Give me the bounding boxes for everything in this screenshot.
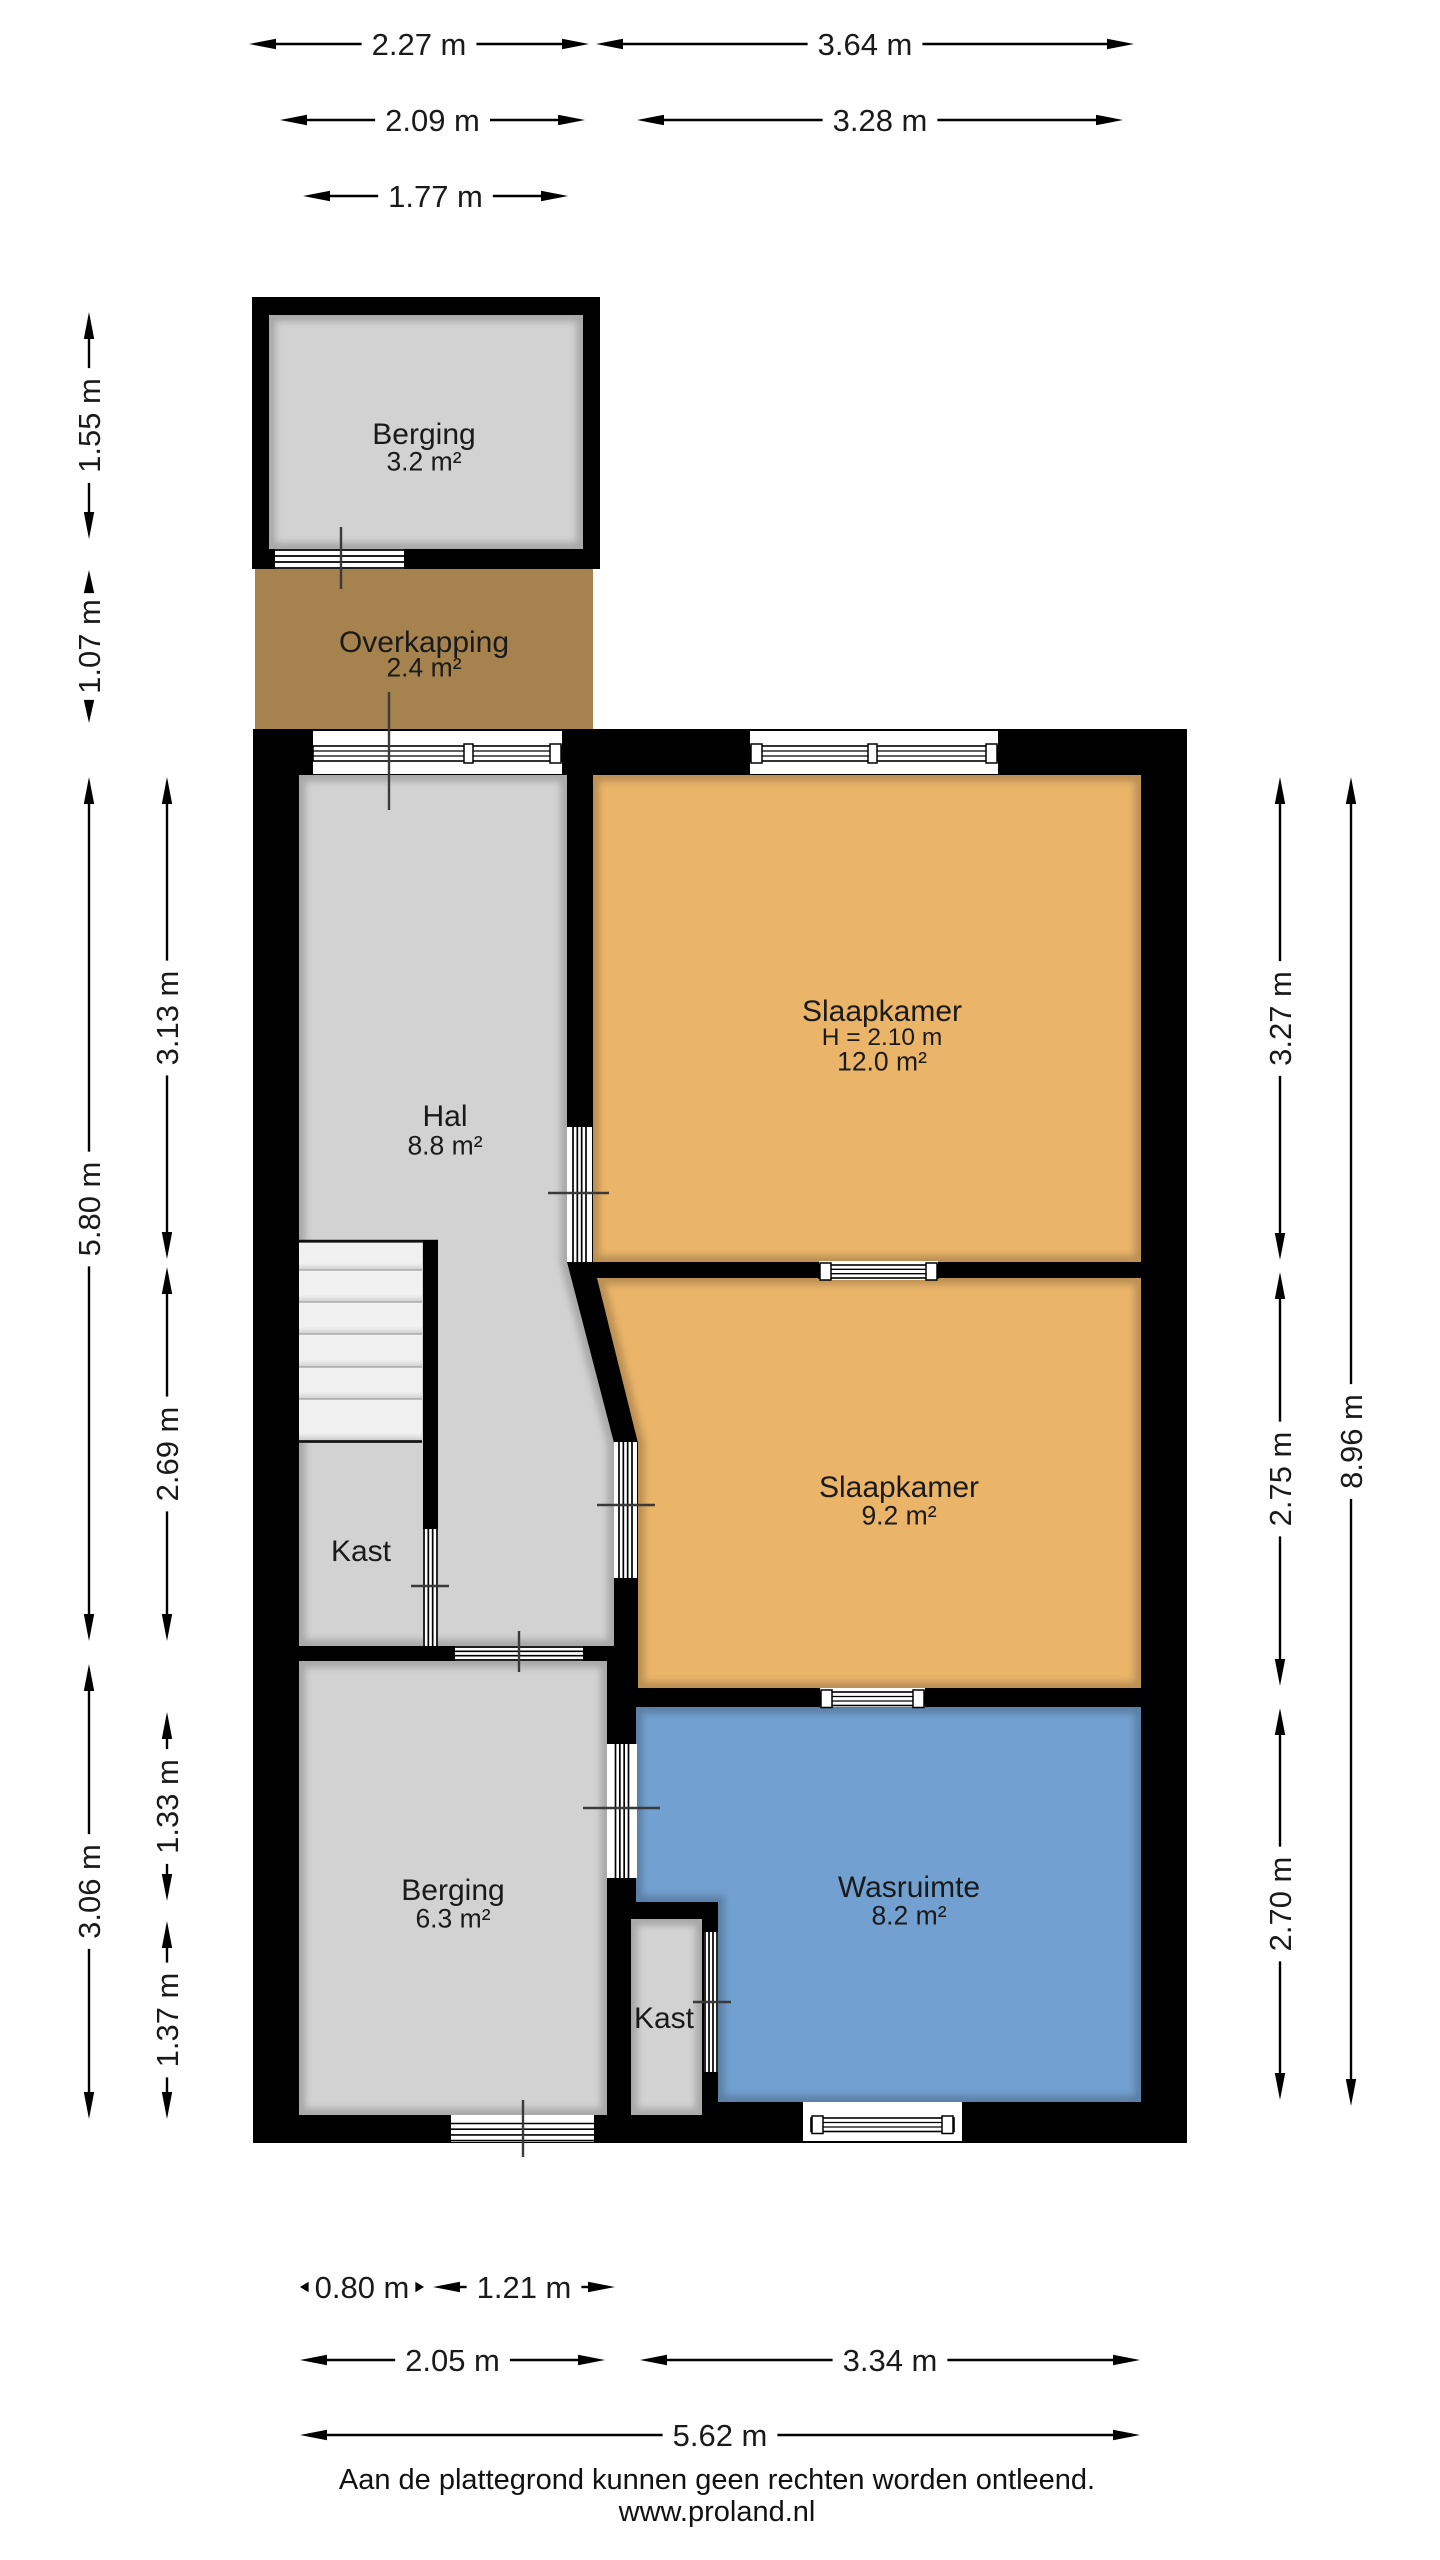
svg-text:2.05 m: 2.05 m bbox=[405, 2343, 500, 2378]
svg-text:8.96 m: 8.96 m bbox=[1334, 1394, 1369, 1489]
svg-text:0.80 m: 0.80 m bbox=[315, 2270, 410, 2305]
svg-text:1.55 m: 1.55 m bbox=[72, 378, 107, 473]
svg-text:12.0 m²: 12.0 m² bbox=[837, 1047, 927, 1077]
svg-text:5.80 m: 5.80 m bbox=[72, 1162, 107, 1257]
svg-text:1.77 m: 1.77 m bbox=[388, 179, 483, 214]
svg-text:8.8 m²: 8.8 m² bbox=[407, 1131, 482, 1161]
svg-text:Kast: Kast bbox=[331, 1535, 392, 1568]
svg-text:3.28 m: 3.28 m bbox=[833, 103, 928, 138]
svg-text:8.2 m²: 8.2 m² bbox=[871, 1901, 946, 1931]
svg-text:Slaapkamer: Slaapkamer bbox=[819, 1471, 979, 1504]
svg-text:2.4 m²: 2.4 m² bbox=[386, 653, 461, 683]
svg-text:3.27 m: 3.27 m bbox=[1263, 971, 1298, 1066]
svg-text:www.proland.nl: www.proland.nl bbox=[618, 2496, 816, 2528]
svg-text:1.37 m: 1.37 m bbox=[150, 1973, 185, 2068]
svg-text:2.09 m: 2.09 m bbox=[385, 103, 480, 138]
svg-text:2.69 m: 2.69 m bbox=[150, 1407, 185, 1502]
svg-text:1.33 m: 1.33 m bbox=[150, 1759, 185, 1854]
svg-text:Wasruimte: Wasruimte bbox=[838, 1871, 980, 1904]
svg-text:Berging: Berging bbox=[401, 1874, 504, 1907]
svg-text:3.64 m: 3.64 m bbox=[818, 27, 913, 62]
svg-text:3.13 m: 3.13 m bbox=[150, 971, 185, 1066]
svg-text:2.27 m: 2.27 m bbox=[372, 27, 467, 62]
svg-text:6.3 m²: 6.3 m² bbox=[415, 1904, 490, 1934]
svg-text:2.75 m: 2.75 m bbox=[1263, 1432, 1298, 1527]
svg-text:Kast: Kast bbox=[634, 2002, 695, 2035]
svg-text:3.2 m²: 3.2 m² bbox=[386, 447, 461, 477]
svg-text:9.2 m²: 9.2 m² bbox=[861, 1501, 936, 1531]
svg-text:1.07 m: 1.07 m bbox=[72, 599, 107, 694]
svg-text:5.62 m: 5.62 m bbox=[673, 2418, 768, 2453]
svg-text:1.21 m: 1.21 m bbox=[477, 2270, 572, 2305]
svg-text:2.70 m: 2.70 m bbox=[1263, 1857, 1298, 1952]
svg-text:Aan de plattegrond kunnen geen: Aan de plattegrond kunnen geen rechten w… bbox=[339, 2464, 1095, 2496]
svg-text:Hal: Hal bbox=[422, 1100, 467, 1133]
svg-text:3.06 m: 3.06 m bbox=[72, 1844, 107, 1939]
svg-text:3.34 m: 3.34 m bbox=[843, 2343, 938, 2378]
